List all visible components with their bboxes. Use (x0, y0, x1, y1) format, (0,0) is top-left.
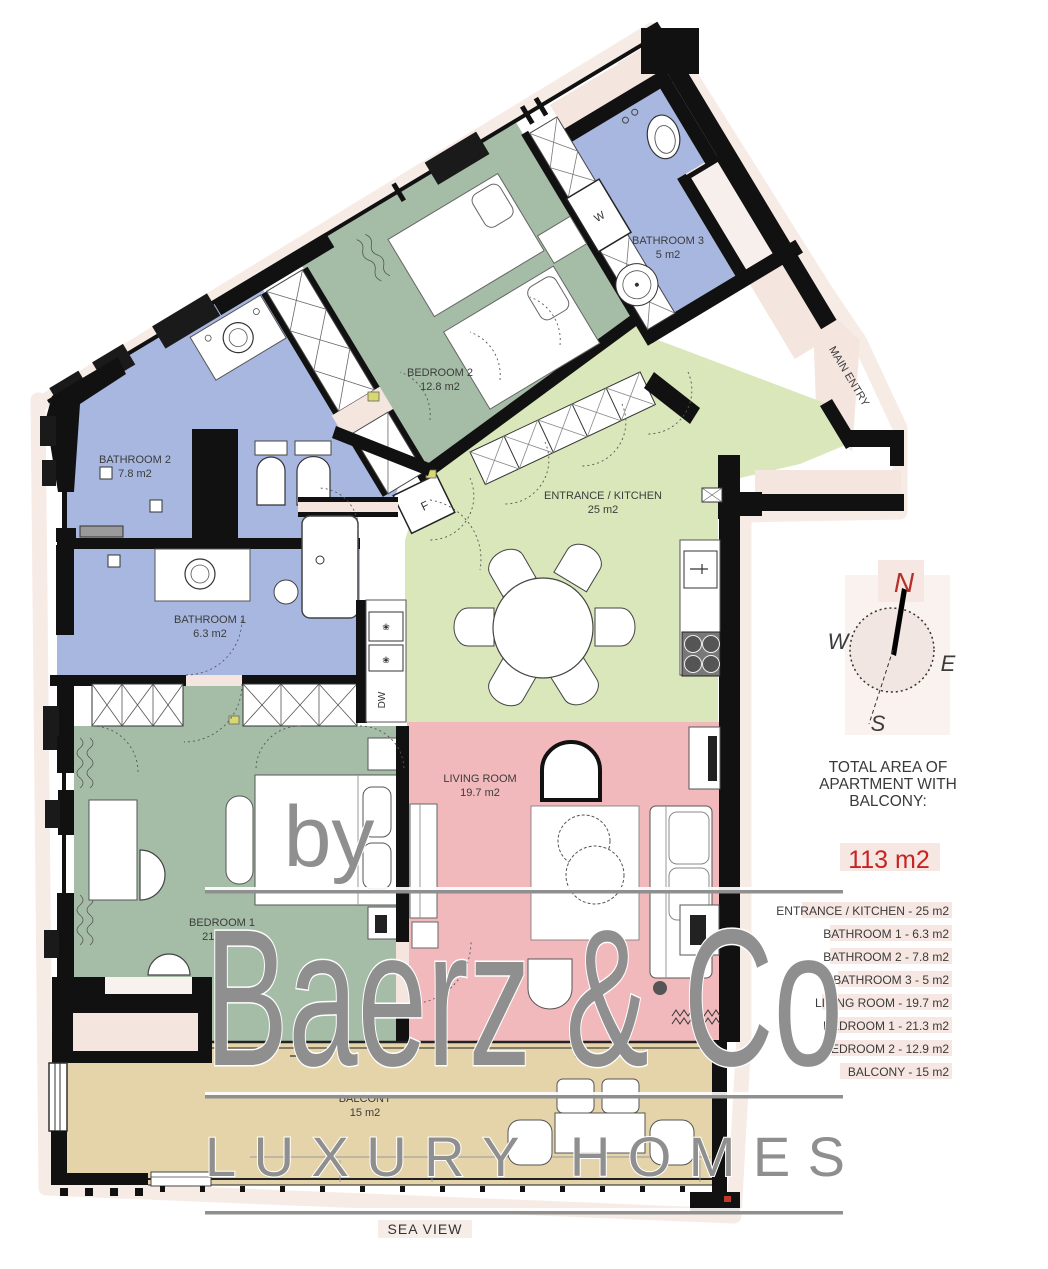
svg-text:15 m2: 15 m2 (350, 1107, 381, 1119)
svg-text:TOTAL AREA OF: TOTAL AREA OF (829, 759, 948, 776)
svg-text:❀: ❀ (382, 622, 390, 632)
svg-text:7.8 m2: 7.8 m2 (118, 468, 152, 480)
svg-text:SEA VIEW: SEA VIEW (388, 1221, 463, 1237)
svg-text:BALCONY - 15 m2: BALCONY - 15 m2 (848, 1065, 949, 1079)
svg-text:12.8 m2: 12.8 m2 (420, 381, 460, 393)
svg-text:S: S (871, 711, 886, 736)
svg-text:❀: ❀ (382, 655, 390, 665)
svg-text:by: by (284, 789, 375, 885)
svg-text:DW: DW (377, 691, 388, 708)
svg-text:BATHROOM 2: BATHROOM 2 (99, 454, 171, 466)
svg-text:113 m2: 113 m2 (848, 846, 930, 874)
svg-text:APARTMENT WITH: APARTMENT WITH (819, 776, 957, 793)
svg-text:19.7 m2: 19.7 m2 (460, 787, 500, 799)
svg-text:W: W (828, 629, 851, 654)
svg-text:BATHROOM 3 - 5 m2: BATHROOM 3 - 5 m2 (833, 973, 949, 987)
svg-text:E: E (941, 651, 956, 676)
svg-text:BATHROOM 3: BATHROOM 3 (632, 235, 704, 247)
svg-text:N: N (894, 567, 915, 598)
svg-text:Baerz & Co: Baerz & Co (205, 889, 843, 1107)
svg-text:5 m2: 5 m2 (656, 249, 680, 261)
svg-text:LIVING ROOM: LIVING ROOM (443, 773, 516, 785)
svg-text:BATHROOM 1: BATHROOM 1 (174, 614, 246, 626)
svg-text:L U X U R Y H O M E S: L U X U R Y H O M E S (205, 1125, 845, 1188)
svg-text:ENTRANCE / KITCHEN: ENTRANCE / KITCHEN (544, 490, 662, 502)
svg-text:25 m2: 25 m2 (588, 504, 619, 516)
svg-text:BALCONY:: BALCONY: (849, 793, 927, 810)
svg-text:BEDROOM 2: BEDROOM 2 (407, 367, 473, 379)
svg-text:6.3 m2: 6.3 m2 (193, 628, 227, 640)
